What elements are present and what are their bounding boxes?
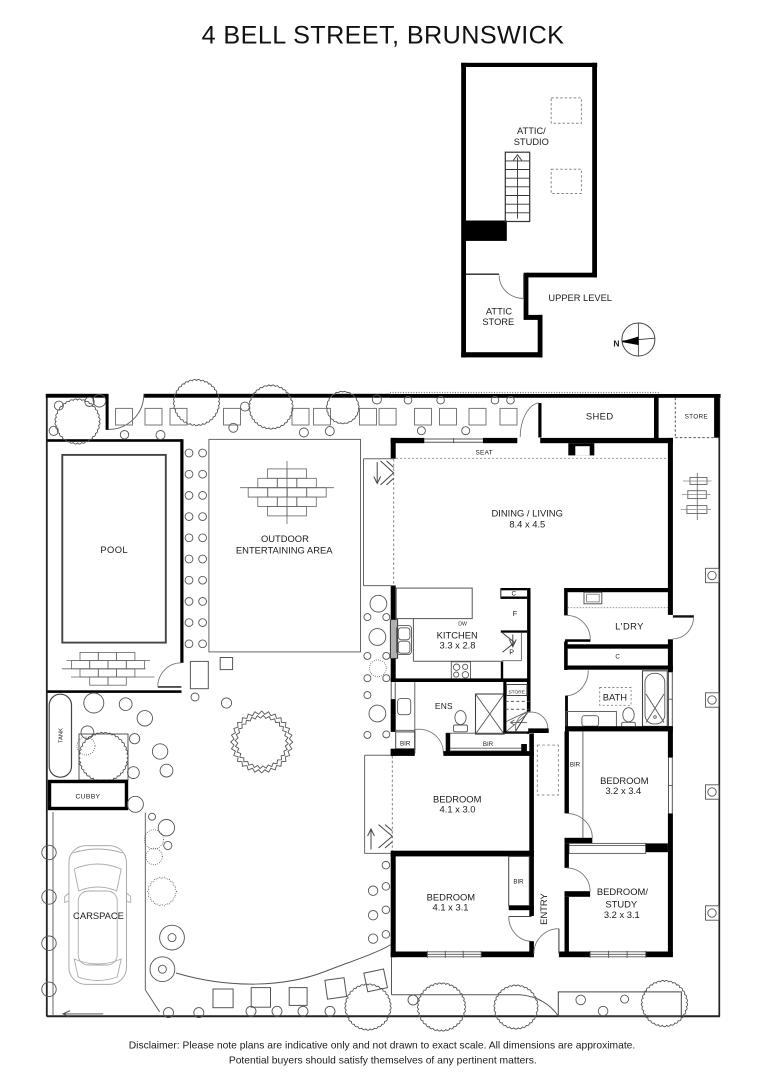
svg-text:4 BELL STREET, BRUNSWICK: 4 BELL STREET, BRUNSWICK — [202, 22, 565, 50]
svg-text:CUBBY: CUBBY — [75, 794, 100, 801]
svg-text:SHED: SHED — [586, 410, 614, 421]
svg-text:ATTIC: ATTIC — [486, 307, 512, 317]
svg-text:BIR: BIR — [570, 761, 581, 768]
svg-text:STUDY: STUDY — [605, 898, 638, 909]
svg-text:C: C — [511, 591, 516, 598]
svg-text:4.1 x 3.1: 4.1 x 3.1 — [433, 902, 469, 913]
svg-text:STORE: STORE — [685, 413, 708, 420]
svg-text:3.3 x 2.8: 3.3 x 2.8 — [440, 640, 476, 651]
svg-text:BIR: BIR — [400, 740, 411, 747]
svg-text:Potential buyers should satisf: Potential buyers should satisfy themselv… — [229, 1055, 537, 1066]
svg-text:Disclaimer: Please note plans: Disclaimer: Please note plans are indica… — [129, 1040, 636, 1051]
svg-text:L'DRY: L'DRY — [615, 620, 644, 631]
svg-text:8.4 x 4.5: 8.4 x 4.5 — [509, 519, 545, 530]
svg-text:DINING / LIVING: DINING / LIVING — [492, 507, 563, 518]
svg-text:ATTIC/: ATTIC/ — [517, 126, 546, 136]
svg-text:BEDROOM/: BEDROOM/ — [597, 886, 648, 897]
svg-text:3.2 x 3.4: 3.2 x 3.4 — [605, 785, 641, 796]
svg-text:F: F — [513, 609, 518, 618]
svg-text:CARSPACE: CARSPACE — [73, 910, 124, 921]
svg-text:N: N — [613, 339, 619, 349]
svg-text:STUDIO: STUDIO — [514, 137, 549, 147]
svg-text:3.2 x 3.1: 3.2 x 3.1 — [604, 909, 640, 920]
svg-text:BIR: BIR — [513, 878, 524, 885]
svg-text:4.1 x 3.0: 4.1 x 3.0 — [440, 804, 476, 815]
svg-text:UPPER LEVEL: UPPER LEVEL — [548, 293, 612, 303]
svg-text:ENTRY: ENTRY — [538, 892, 549, 924]
svg-text:DW: DW — [458, 621, 467, 627]
svg-text:C: C — [615, 655, 620, 661]
svg-text:STORE: STORE — [482, 317, 514, 327]
svg-text:OUTDOOR: OUTDOOR — [261, 533, 309, 544]
svg-text:ENS: ENS — [435, 701, 453, 711]
svg-text:ENTERTAINING AREA: ENTERTAINING AREA — [236, 544, 333, 555]
svg-text:BATH: BATH — [603, 692, 627, 703]
svg-text:TANK: TANK — [59, 728, 65, 743]
svg-text:POOL: POOL — [100, 544, 128, 555]
svg-text:SEAT: SEAT — [475, 449, 492, 456]
svg-text:P: P — [509, 648, 514, 657]
svg-text:STORE: STORE — [508, 690, 524, 696]
svg-text:BIR: BIR — [483, 741, 494, 748]
